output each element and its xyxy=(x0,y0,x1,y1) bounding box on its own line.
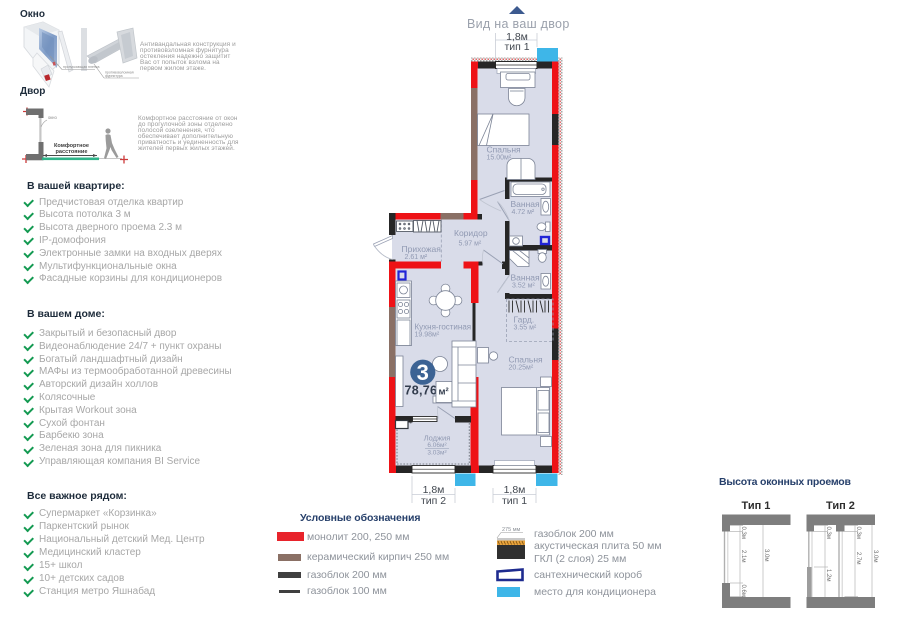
svg-text:3.0м: 3.0м xyxy=(872,550,878,562)
svg-text:6.06м²: 6.06м² xyxy=(427,442,447,449)
svg-text:Гард.: Гард. xyxy=(514,315,535,325)
svg-text:0.3м: 0.3м xyxy=(740,527,746,539)
svg-text:15.00м²: 15.00м² xyxy=(487,155,512,162)
svg-text:19.98м²: 19.98м² xyxy=(415,332,440,339)
svg-text:78,76: 78,76 xyxy=(405,384,438,398)
svg-text:Прихожая: Прихожая xyxy=(402,244,442,254)
svg-text:Ванная: Ванная xyxy=(511,199,541,209)
svg-text:3: 3 xyxy=(417,360,429,385)
svg-text:0.3м: 0.3м xyxy=(855,527,861,539)
svg-text:Коридор: Коридор xyxy=(454,228,488,238)
svg-text:2.1м: 2.1м xyxy=(740,550,746,562)
svg-text:Спальня: Спальня xyxy=(509,355,544,365)
svg-text:2.7м: 2.7м xyxy=(855,552,861,564)
svg-text:3.52 м²: 3.52 м² xyxy=(512,283,535,290)
svg-text:Спальня: Спальня xyxy=(487,145,522,155)
svg-text:0.3м: 0.3м xyxy=(825,527,831,539)
svg-text:0.6м: 0.6м xyxy=(740,585,746,597)
svg-text:3.0м: 3.0м xyxy=(763,549,769,561)
svg-text:20.25м²: 20.25м² xyxy=(509,365,534,372)
svg-text:Ванная: Ванная xyxy=(511,273,541,283)
svg-text:5.97 м²: 5.97 м² xyxy=(459,241,482,248)
svg-text:4.72 м²: 4.72 м² xyxy=(512,209,535,216)
svg-text:Кухня-гостиная: Кухня-гостиная xyxy=(415,323,472,332)
svg-text:1.2м: 1.2м xyxy=(825,569,831,581)
svg-text:3.03м²: 3.03м² xyxy=(427,450,447,457)
svg-text:275 мм: 275 мм xyxy=(502,527,520,533)
svg-text:м²: м² xyxy=(439,387,449,398)
svg-text:2.61 м²: 2.61 м² xyxy=(405,254,428,261)
svg-text:3.55 м²: 3.55 м² xyxy=(514,325,537,332)
